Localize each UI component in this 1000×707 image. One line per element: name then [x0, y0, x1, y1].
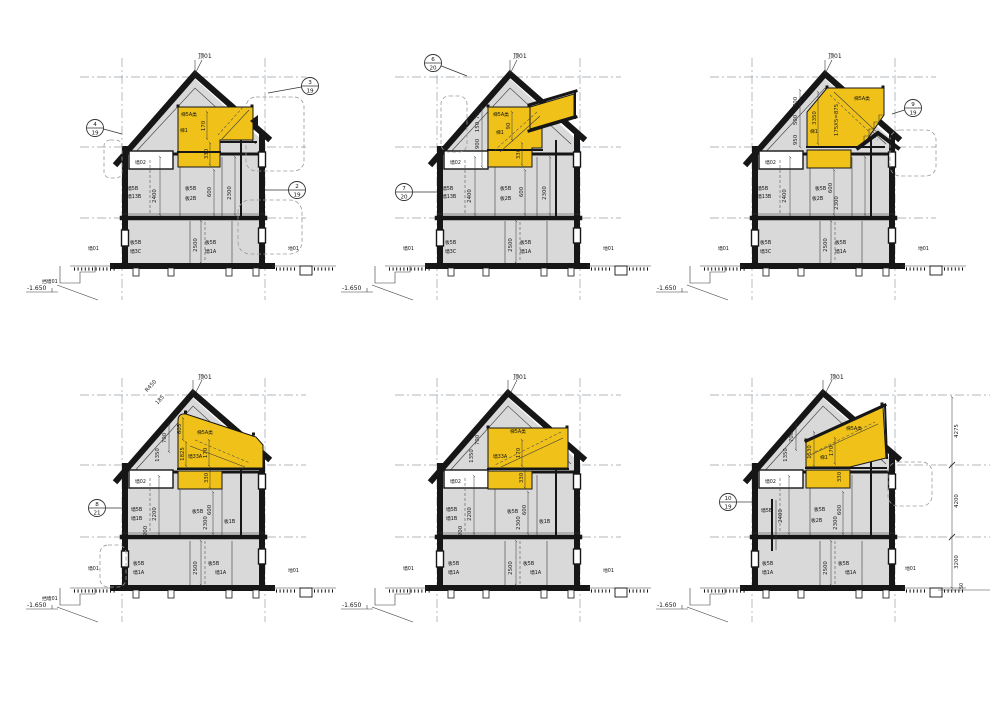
- slab-label: 板5B: [762, 560, 773, 567]
- wall-label: 墙5B: [442, 185, 453, 192]
- wall-label: 墙3C: [445, 248, 457, 255]
- slab-label: 板5B: [130, 239, 141, 246]
- elevation-label: -1.650: [27, 285, 47, 292]
- wall-label: 墙1A: [205, 248, 217, 255]
- wall-label: 墙5B: [757, 185, 768, 192]
- dim-label: 950: [793, 134, 799, 145]
- svg-text:3: 3: [308, 80, 312, 86]
- wall-label: 墙3C: [130, 248, 142, 255]
- elevation-label: -1.650: [342, 602, 362, 609]
- wall-label: 墙5B: [131, 506, 142, 513]
- elevation-label: -1.650: [27, 602, 47, 609]
- dim-label: 1350: [155, 448, 161, 462]
- section-3: 顶01 梯5A类 梯1 3350 175X5=875 600 700 500 9…: [656, 53, 966, 300]
- dim-label: 90: [506, 122, 512, 129]
- slab-label: 板2B: [811, 517, 822, 524]
- storey-dim: 3200: [954, 555, 960, 569]
- dim-label: 330: [516, 148, 522, 159]
- svg-text:19: 19: [724, 505, 732, 511]
- drawing-canvas: 顶01 梯5A类 梯1 170 330 600 墙02 墙5B 墙13B 240…: [0, 0, 1000, 707]
- slab-label: 板5B: [507, 508, 518, 515]
- ref-bubble: 9 19: [892, 100, 922, 117]
- stair-label: 梯5A类: [510, 428, 526, 435]
- wall-label: 墙1A: [133, 569, 145, 576]
- storey-dim: 4275: [954, 424, 960, 438]
- svg-text:20: 20: [429, 66, 437, 72]
- elevation-label: -1.650: [657, 285, 677, 292]
- dim-label: 700: [789, 431, 795, 442]
- slab-label: 板5B: [838, 560, 849, 567]
- dim-label: 330: [837, 471, 843, 482]
- roof-label: 顶01: [513, 53, 527, 60]
- dim-label: 600: [207, 504, 213, 515]
- wall-label: 墙1A: [448, 569, 460, 576]
- wall-label: 墙02: [450, 478, 461, 485]
- dim-label: 600: [207, 186, 213, 197]
- wall-label: 墙02: [135, 478, 146, 485]
- slab-label: 板5B: [133, 560, 144, 567]
- dim-label: 2400: [782, 189, 788, 203]
- roof-label: 顶01: [513, 374, 527, 381]
- dim-label: 600: [519, 186, 525, 197]
- dim-label: 2500: [193, 238, 199, 252]
- dim-label: 2300: [834, 196, 840, 210]
- slab-label: 板5B: [815, 185, 826, 192]
- dim-label: 200: [458, 525, 464, 536]
- wall-label: 墙02: [450, 159, 461, 166]
- svg-text:19: 19: [306, 89, 314, 95]
- dim-label: 170: [203, 447, 209, 458]
- slab-label: 板5B: [520, 239, 531, 246]
- right-dim-chain: 4275 4200 3200 50: [938, 395, 990, 590]
- wall-label: 墙33A: [493, 453, 508, 460]
- wall-label: 墙1A: [520, 248, 532, 255]
- slab-label: 板5B: [760, 239, 771, 246]
- ground-label: 地01: [603, 245, 614, 252]
- section-5: 顶01 梯5A类 墙33A 700 1350 170 330 600 2300 …: [341, 374, 651, 622]
- wall-label: 墙1A: [762, 569, 774, 576]
- slab-label: 板5B: [500, 185, 511, 192]
- dim-label: 330: [204, 472, 210, 483]
- dim-label: 2200: [152, 507, 158, 521]
- ref-bubble: 10 19: [720, 494, 753, 511]
- section-4: 顶01 梯5A类 墙33A R450 185 605 1825 700 1350…: [26, 374, 336, 622]
- dim-label: 170: [829, 445, 835, 456]
- ref-bubble: 2 19: [265, 182, 306, 199]
- wall-label: 墙01: [403, 565, 414, 572]
- svg-text:19: 19: [91, 131, 99, 137]
- dim-label: 2300: [516, 516, 522, 530]
- stair-label: 梯1: [496, 129, 504, 136]
- slab-label: 板1B: [224, 518, 235, 525]
- ground-label: 地01: [905, 565, 916, 572]
- section-2: 顶01 梯5A类 梯1 90 330 600 700 150 900 墙02 墙…: [341, 53, 651, 300]
- dim-label: 1825: [180, 447, 186, 461]
- dim-label: 900: [475, 138, 481, 149]
- dim-label: 700: [162, 432, 168, 443]
- dim-label: 1350: [783, 448, 789, 462]
- slab-label: 板5B: [448, 560, 459, 567]
- dim-label: 2500: [823, 561, 829, 575]
- ground-label: 地01: [603, 567, 614, 574]
- stair-label: 梯5A类: [181, 111, 197, 118]
- stair-label: 梯5A类: [493, 111, 509, 118]
- stair-label: 梯1: [180, 127, 188, 134]
- slab-label: 板2B: [500, 195, 511, 202]
- wall-label: 墙02: [135, 159, 146, 166]
- section-1: 顶01 梯5A类 梯1 170 330 600 墙02 墙5B 墙13B 240…: [26, 53, 336, 300]
- slab-label: 板2B: [185, 195, 196, 202]
- roof-label: 顶01: [198, 53, 212, 60]
- wall-label: 墙13B: [757, 193, 771, 200]
- wall-label: 墙01: [403, 245, 414, 252]
- ref-bubble: 4 19: [87, 120, 123, 137]
- dim-label: 175X5=875: [834, 104, 840, 136]
- dim-label: 170: [516, 447, 522, 458]
- drawing-sheet: 顶01 梯5A类 梯1 170 330 600 墙02 墙5B 墙13B 240…: [0, 0, 1000, 707]
- stair-label: 梯5A类: [197, 429, 213, 436]
- stair-label: 梯1: [820, 454, 828, 461]
- elevation-label: -1.650: [342, 285, 362, 292]
- roof-label: 顶01: [198, 374, 212, 381]
- svg-text:19: 19: [909, 111, 917, 117]
- dim-label: 185: [155, 394, 166, 406]
- slab-label: 板2B: [812, 195, 823, 202]
- wall-label: 墙01: [88, 245, 99, 252]
- dim-label: 2400: [778, 509, 784, 523]
- dim-label: 3350: [812, 111, 818, 125]
- slab-label: 板5B: [185, 185, 196, 192]
- ref-bubble: 3 19: [268, 78, 319, 95]
- dim-label: 2400: [152, 189, 158, 203]
- svg-text:19: 19: [293, 193, 301, 199]
- stair-label: 梯5A类: [854, 95, 870, 102]
- dim-label: 500: [793, 114, 799, 125]
- dim-label: 150: [475, 121, 481, 132]
- wall-label: 墙1A: [845, 569, 857, 576]
- dim-label: 2300: [542, 186, 548, 200]
- slab-label: 板5B: [814, 506, 825, 513]
- svg-text:21: 21: [93, 511, 101, 517]
- dim-label: 2500: [193, 561, 199, 575]
- dim-label: 2300: [203, 516, 209, 530]
- wall-label: 墙5B: [446, 506, 457, 513]
- ground-label: 地01: [288, 567, 299, 574]
- dim-label: 2500: [823, 238, 829, 252]
- roof-label: 顶01: [830, 374, 844, 381]
- svg-text:20: 20: [400, 195, 408, 201]
- dim-label: 2400: [467, 189, 473, 203]
- slab-label: 板5B: [205, 239, 216, 246]
- dim-label: 605: [177, 424, 183, 434]
- dim-label: 170: [201, 120, 207, 131]
- slab-label: 板5B: [192, 508, 203, 515]
- retaining-label: 挡墙01: [42, 278, 58, 285]
- slab-label: 板1B: [539, 518, 550, 525]
- dim-label: 2300: [227, 186, 233, 200]
- dim-label: 2300: [833, 516, 839, 530]
- svg-text:8: 8: [95, 502, 99, 508]
- wall-label: 墙01: [88, 565, 99, 572]
- slab-label: 板5B: [835, 239, 846, 246]
- wall-label: 墙02: [765, 159, 776, 166]
- dim-label: 1350: [469, 449, 475, 463]
- dim-label: 700: [475, 434, 481, 445]
- slab-label: 板5B: [445, 239, 456, 246]
- dim-label: 2200: [467, 507, 473, 521]
- ref-bubble: 8 21: [89, 500, 123, 517]
- wall-label: 墙13B: [127, 193, 141, 200]
- ground-label: 地01: [288, 245, 299, 252]
- elevation-label: -1.650: [657, 602, 677, 609]
- dim-label: 700: [793, 96, 799, 107]
- slab-label: 板5B: [523, 560, 534, 567]
- stair-label: 梯5A类: [846, 425, 862, 432]
- dim-label: 330: [204, 148, 210, 159]
- dim-label: 2500: [508, 561, 514, 575]
- dim-label: 1530: [807, 445, 813, 459]
- dim-label: 600: [522, 504, 528, 515]
- wall-label: 墙1A: [530, 569, 542, 576]
- wall-label: 墙5B: [761, 507, 772, 514]
- retaining-label: 挡墙01: [42, 595, 58, 602]
- wall-label: 墙13B: [442, 193, 456, 200]
- wall-label: 墙1B: [131, 515, 142, 522]
- dim-label: 600: [828, 182, 834, 193]
- roof-label: 顶01: [828, 53, 842, 60]
- wall-label: 墙1A: [215, 569, 227, 576]
- dim-label: 330: [519, 472, 525, 483]
- wall-label: 墙33A: [188, 453, 203, 460]
- stair-label: 梯1: [810, 128, 818, 135]
- svg-text:6: 6: [431, 57, 435, 63]
- storey-dim: 4200: [954, 494, 960, 508]
- wall-label: 墙02: [765, 478, 776, 485]
- svg-text:4: 4: [93, 122, 97, 128]
- slab-label: 板5B: [208, 560, 219, 567]
- wall-label: 墙1B: [446, 515, 457, 522]
- ref-bubble: 6 20: [425, 55, 468, 77]
- svg-text:10: 10: [724, 496, 732, 502]
- ground-label: 地01: [918, 245, 929, 252]
- svg-text:7: 7: [402, 186, 406, 192]
- svg-text:2: 2: [295, 184, 299, 190]
- ref-bubble: 7 20: [396, 184, 438, 201]
- wall-label: 墙01: [718, 245, 729, 252]
- wall-label: 墙1A: [835, 248, 847, 255]
- dim-label: 600: [837, 504, 843, 515]
- wall-label: 墙5B: [127, 185, 138, 192]
- wall-label: 墙3C: [760, 248, 772, 255]
- svg-text:9: 9: [911, 102, 915, 108]
- dim-label: 700: [475, 108, 481, 119]
- dim-label: 2500: [508, 238, 514, 252]
- dim-label: R450: [144, 379, 158, 394]
- section-6: 顶01 梯5A类 梯1 700 1350 1530 170 330 600 23…: [656, 374, 966, 622]
- storey-dim: 50: [959, 583, 965, 589]
- dim-label: 200: [143, 525, 149, 536]
